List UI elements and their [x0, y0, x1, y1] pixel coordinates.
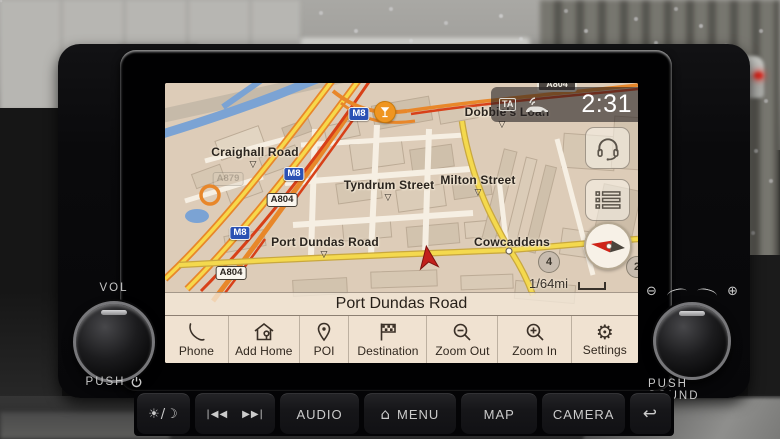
magnifier-plus-icon [524, 321, 546, 343]
compass-needle-icon [587, 233, 630, 260]
gear-icon: ⚙ [596, 322, 614, 342]
list-icon [594, 188, 622, 212]
current-street-name: Port Dundas Road [336, 295, 468, 313]
seek-forward-icon: ▶▶| [242, 409, 264, 420]
knob-notch [101, 310, 127, 315]
home-pin-icon [252, 321, 276, 343]
badge-a804-lower: A804 [216, 266, 247, 280]
route-list-button[interactable] [585, 179, 630, 221]
label-cowcaddens: Cowcaddens [474, 235, 550, 249]
map-pin-icon [313, 321, 335, 343]
sound-knob[interactable] [653, 302, 731, 380]
label-port-dundas-road: Port Dundas Road [271, 235, 379, 249]
marker-tyndrum: ▽ [385, 193, 392, 203]
voice-assist-button[interactable] [585, 127, 630, 169]
menu-item-poi[interactable]: POI [300, 316, 350, 363]
power-icon [130, 376, 142, 388]
arc-left [666, 286, 688, 300]
seek-button[interactable]: |◀◀ ▶▶| [195, 393, 275, 434]
menu-item-phone[interactable]: Phone [165, 316, 229, 363]
arc-right [696, 286, 718, 300]
door-pillar [0, 108, 62, 439]
back-arrow-icon: ↩ [643, 404, 658, 424]
connected-car-icon [522, 96, 550, 114]
nav-screen: Craighall Road ▽ Dobbie's Loan ▽ Tyndrum… [165, 83, 638, 363]
phone-icon [185, 321, 207, 343]
badge-m8-low: M8 [229, 226, 250, 240]
volume-knob[interactable] [73, 301, 155, 383]
knob-notch [679, 311, 705, 316]
brake-light-right [754, 72, 763, 79]
compass-button[interactable] [584, 222, 632, 270]
volume-knob-label: VOL [99, 282, 128, 294]
badge-m8-mid: M8 [283, 167, 304, 181]
back-button[interactable]: ↩ [630, 393, 671, 434]
menu-item-add-home[interactable]: Add Home [229, 316, 300, 363]
scale-bracket-icon [578, 282, 606, 290]
ta-indicator: TA [499, 98, 516, 111]
camera-button[interactable]: CAMERA [542, 393, 624, 434]
junction-circle-4: 4 [538, 251, 560, 273]
magnifier-minus-icon [451, 321, 473, 343]
zoom-knob-markings: ⊖ ⊕ [646, 284, 738, 298]
current-street-bar: Port Dundas Road [165, 292, 638, 316]
hardware-button-strip: ☀/☽ |◀◀ ▶▶| AUDIO ⌂ MENU MAP CAMERA ↩ [134, 391, 674, 436]
menu-item-zoom-out[interactable]: Zoom Out [427, 316, 498, 363]
clock: 2:31 [581, 90, 632, 119]
map-scale: 1/64mi [529, 276, 606, 291]
audio-button[interactable]: AUDIO [280, 393, 358, 434]
menu-bar: Phone Add Home POI [165, 316, 638, 363]
cocktail-glass-icon [378, 105, 392, 119]
label-milton-street: Milton Street [440, 173, 515, 187]
menu-item-destination[interactable]: Destination [349, 316, 427, 363]
badge-m8-top: M8 [348, 107, 369, 121]
menu-button[interactable]: ⌂ MENU [364, 393, 456, 434]
zoom-out-symbol: ⊖ [646, 284, 657, 299]
checkered-flag-icon [377, 321, 399, 343]
menu-item-settings[interactable]: ⚙ Settings [572, 316, 638, 363]
day-night-button[interactable]: ☀/☽ [137, 393, 190, 434]
raindrops [0, 0, 2, 2]
label-craighall-road: Craighall Road [211, 145, 298, 159]
headset-icon [595, 135, 621, 161]
menu-item-zoom-in[interactable]: Zoom In [498, 316, 571, 363]
status-bar: TA 2:31 [491, 87, 638, 122]
dashboard-photo: Craighall Road ▽ Dobbie's Loan ▽ Tyndrum… [0, 0, 780, 439]
badge-a879-faint: A879 [213, 172, 244, 186]
badge-a804-upper: A804 [267, 193, 298, 207]
seek-back-icon: |◀◀ [206, 409, 228, 420]
marker-milton: ▽ [475, 188, 482, 198]
house-icon: ⌂ [380, 405, 391, 423]
marker-port-dundas: ▽ [321, 250, 328, 260]
zoom-in-symbol: ⊕ [727, 284, 738, 299]
label-tyndrum-street: Tyndrum Street [344, 178, 435, 192]
day-night-icon: ☀/☽ [148, 407, 179, 422]
power-label: PUSH [86, 376, 143, 388]
map-button[interactable]: MAP [461, 393, 537, 434]
marker-craighall: ▽ [250, 160, 257, 170]
scale-label: 1/64mi [529, 276, 568, 291]
bar-poi-icon[interactable] [374, 101, 396, 123]
